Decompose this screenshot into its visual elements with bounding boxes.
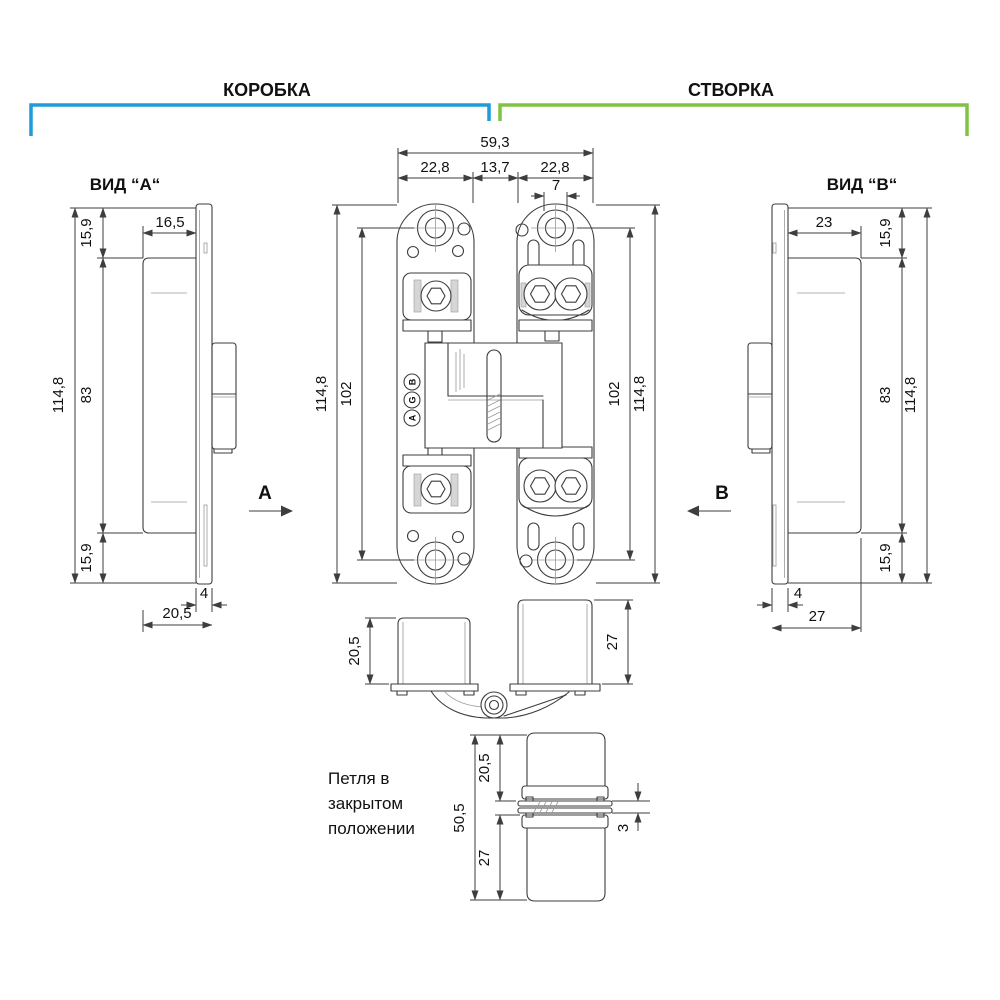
- dim-label: 15,9: [877, 543, 894, 572]
- front-view: B G A 59,3 22,8 13,7 22,8 7: [313, 134, 660, 584]
- leaf-bracket: [500, 105, 967, 136]
- brand-letter: A: [408, 414, 418, 421]
- dim-label: 20,5: [346, 636, 363, 665]
- view-a-dimensions: 15,9 83 114,8 15,9 16,5 4 20,5: [50, 208, 227, 632]
- dim-label: 22,8: [420, 159, 449, 176]
- dim-label: 102: [338, 381, 355, 406]
- view-b-title: ВИД “В“: [827, 175, 898, 194]
- frame-section-label: КОРОБКА: [223, 80, 311, 100]
- dim-label: 59,3: [480, 134, 509, 151]
- dim-label: 20,5: [162, 605, 191, 622]
- dim-label: 22,8: [540, 159, 569, 176]
- dim-label: 114,8: [50, 377, 67, 413]
- view-a: ВИД “А“ 15,9 83 114,8: [50, 175, 293, 632]
- caption-line: Петля в: [328, 769, 389, 788]
- view-b-direction-arrow: В: [687, 483, 731, 517]
- view-a-direction-arrow: А: [249, 483, 293, 517]
- dim-label: 15,9: [78, 543, 95, 572]
- dim-label: 50,5: [451, 803, 468, 832]
- dim-label: 114,8: [631, 376, 648, 412]
- technical-drawing: КОРОБКА СТВОРКА ВИД “А“: [0, 0, 1000, 1000]
- section-brackets: КОРОБКА СТВОРКА: [31, 80, 967, 136]
- open-view-geometry: [391, 600, 600, 718]
- dim-label: 3: [615, 824, 632, 832]
- arrow-b-label: В: [715, 483, 729, 504]
- dim-label: 27: [604, 634, 621, 651]
- view-a-title: ВИД “А“: [90, 175, 161, 194]
- dim-label: 7: [552, 177, 560, 194]
- closed-view-caption: Петля в закрытом положении: [328, 769, 415, 838]
- leaf-section-label: СТВОРКА: [688, 80, 774, 100]
- view-a-geometry: [143, 204, 236, 584]
- dim-label: 83: [877, 387, 894, 404]
- drawing-page: КОРОБКА СТВОРКА ВИД “А“: [0, 0, 1000, 1000]
- arrow-a-label: А: [258, 483, 272, 504]
- closed-view: Петля в закрытом положении 50,5: [328, 733, 650, 901]
- dim-label: 15,9: [78, 218, 95, 247]
- front-view-top-dimensions: 59,3 22,8 13,7 22,8 7: [398, 134, 593, 211]
- brand-letter: B: [408, 378, 418, 385]
- dim-label: 23: [816, 214, 833, 231]
- dim-label: 114,8: [313, 376, 330, 412]
- dim-label: 20,5: [476, 753, 493, 782]
- frame-bracket: [31, 105, 489, 136]
- dim-label: 4: [794, 585, 802, 602]
- hinge-mechanism: [425, 343, 562, 448]
- caption-line: положении: [328, 819, 415, 838]
- brand-letter: G: [408, 396, 418, 403]
- dim-label: 15,9: [877, 218, 894, 247]
- agb-logo: B G A: [404, 374, 420, 426]
- dim-label: 102: [606, 381, 623, 406]
- caption-line: закрытом: [328, 794, 403, 813]
- dim-label: 114,8: [902, 377, 919, 413]
- open-view-dimensions: 20,5 27: [346, 600, 633, 684]
- dim-label: 4: [200, 585, 208, 602]
- view-b-dimensions: 15,9 83 114,8 15,9 23 4 27: [757, 208, 932, 632]
- dim-label: 16,5: [155, 214, 184, 231]
- dim-label: 83: [78, 387, 95, 404]
- dim-label: 13,7: [480, 159, 509, 176]
- view-b-geometry: [748, 204, 861, 584]
- dim-label: 27: [476, 850, 493, 867]
- closed-view-geometry: [518, 733, 612, 901]
- view-b: ВИД “В“ 15,9 83 114,8 15,9: [687, 175, 932, 632]
- closed-view-dimensions: 50,5 20,5 27 3: [451, 735, 650, 900]
- dim-label: 27: [809, 608, 826, 625]
- open-view: 20,5 27: [346, 600, 633, 718]
